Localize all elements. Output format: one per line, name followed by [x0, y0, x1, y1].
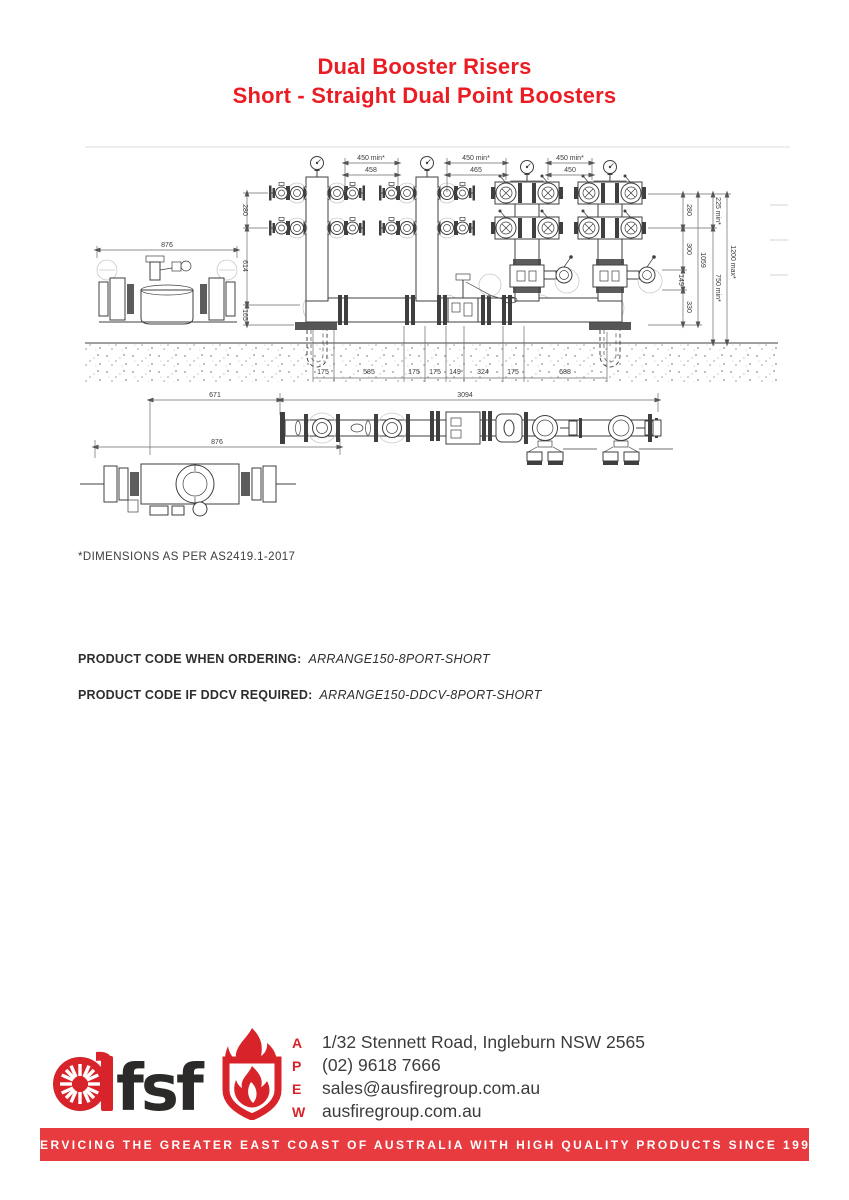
dim-label: 1200 max*: [729, 245, 736, 279]
contact-email[interactable]: sales@ausfiregroup.com.au: [322, 1078, 540, 1099]
dim-label: 671: [209, 392, 221, 399]
title-line-1: Dual Booster Risers: [0, 52, 849, 81]
dim-label: 149: [449, 369, 461, 376]
dim-label: 225 min*: [714, 197, 721, 225]
contact-website-row: W ausfiregroup.com.au: [292, 1101, 645, 1124]
ddcv-side-detail: 876: [97, 242, 237, 324]
contact-key: A: [292, 1035, 322, 1051]
dim-label: 450: [564, 167, 576, 174]
contact-block: A 1/32 Stennett Road, Ingleburn NSW 2565…: [292, 1032, 645, 1124]
dim-label: 175: [317, 369, 329, 376]
plan-view: [280, 411, 673, 465]
product-code-value: ARRANGE150-8PORT-SHORT: [308, 652, 489, 666]
contact-key: E: [292, 1081, 322, 1097]
footer-banner: SERVICING THE GREATER EAST COAST OF AUST…: [40, 1128, 809, 1161]
title-line-2: Short - Straight Dual Point Boosters: [0, 81, 849, 110]
dim-label: 149: [677, 274, 684, 286]
contact-address: 1/32 Stennett Road, Ingleburn NSW 2565: [322, 1032, 645, 1053]
ddcv-plan-detail: [80, 464, 296, 516]
technical-drawing: 450 min* 458 450 min* 465 450 min* 450 2…: [60, 140, 800, 540]
product-code-ddcv-label: PRODUCT CODE IF DDCV REQUIRED:: [78, 688, 312, 702]
logo-fsf-text: fsf: [116, 1052, 205, 1120]
dim-label: 300: [685, 243, 692, 255]
product-code-line-2: PRODUCT CODE IF DDCV REQUIRED:ARRANGE150…: [78, 688, 542, 702]
dim-label: 3094: [457, 392, 473, 399]
contact-key: W: [292, 1104, 322, 1120]
product-code-ddcv-value: ARRANGE150-DDCV-8PORT-SHORT: [319, 688, 541, 702]
dim-label: 585: [363, 369, 375, 376]
dim-label: 280: [241, 204, 248, 216]
right-dimensions: 280 300 149 330 1059 225 min* 750 min* 1…: [648, 194, 736, 343]
afsf-logo: fsf: [50, 1026, 285, 1120]
dim-label: 175: [429, 369, 441, 376]
contact-address-row: A 1/32 Stennett Road, Ingleburn NSW 2565: [292, 1032, 645, 1055]
document-page: { "page": { "title1": "Dual Booster Rise…: [0, 0, 849, 1200]
dim-label: 614: [241, 260, 248, 272]
dimensions-note: *DIMENSIONS AS PER AS2419.1-2017: [78, 551, 295, 563]
dim-label: 876: [161, 242, 173, 249]
dim-label: 324: [477, 369, 489, 376]
product-code-label: PRODUCT CODE WHEN ORDERING:: [78, 652, 301, 666]
dim-label: 330: [685, 301, 692, 313]
dim-label: 175: [507, 369, 519, 376]
dim-label: 450 min*: [556, 155, 584, 162]
contact-key: P: [292, 1058, 322, 1074]
top-dimension-3: 450 min* 450: [548, 155, 592, 180]
contact-website[interactable]: ausfiregroup.com.au: [322, 1101, 482, 1122]
dim-label: 688: [559, 369, 571, 376]
dim-label: 1059: [699, 252, 706, 268]
dim-label: 450 min*: [462, 155, 490, 162]
front-elevation: [85, 157, 778, 383]
dim-label: 175: [408, 369, 420, 376]
dim-label: 750 min*: [714, 274, 721, 302]
product-code-line-1: PRODUCT CODE WHEN ORDERING:ARRANGE150-8P…: [78, 652, 490, 666]
left-dimensions: 280 614 165: [241, 193, 300, 325]
logo-letter-a-icon: [53, 1052, 113, 1111]
dim-label: 280: [685, 204, 692, 216]
dim-label: 458: [365, 167, 377, 174]
contact-phone-row: P (02) 9618 7666: [292, 1055, 645, 1078]
dim-label: 165: [241, 309, 248, 321]
top-dimension-1: 450 min* 458: [345, 155, 398, 192]
page-title: Dual Booster Risers Short - Straight Dua…: [0, 52, 849, 110]
contact-phone: (02) 9618 7666: [322, 1055, 441, 1076]
dim-label: 876: [211, 439, 223, 446]
dim-label: 465: [470, 167, 482, 174]
logo-shield-flame-icon: [225, 1028, 278, 1117]
contact-email-row: E sales@ausfiregroup.com.au: [292, 1078, 645, 1101]
dim-label: 450 min*: [357, 155, 385, 162]
